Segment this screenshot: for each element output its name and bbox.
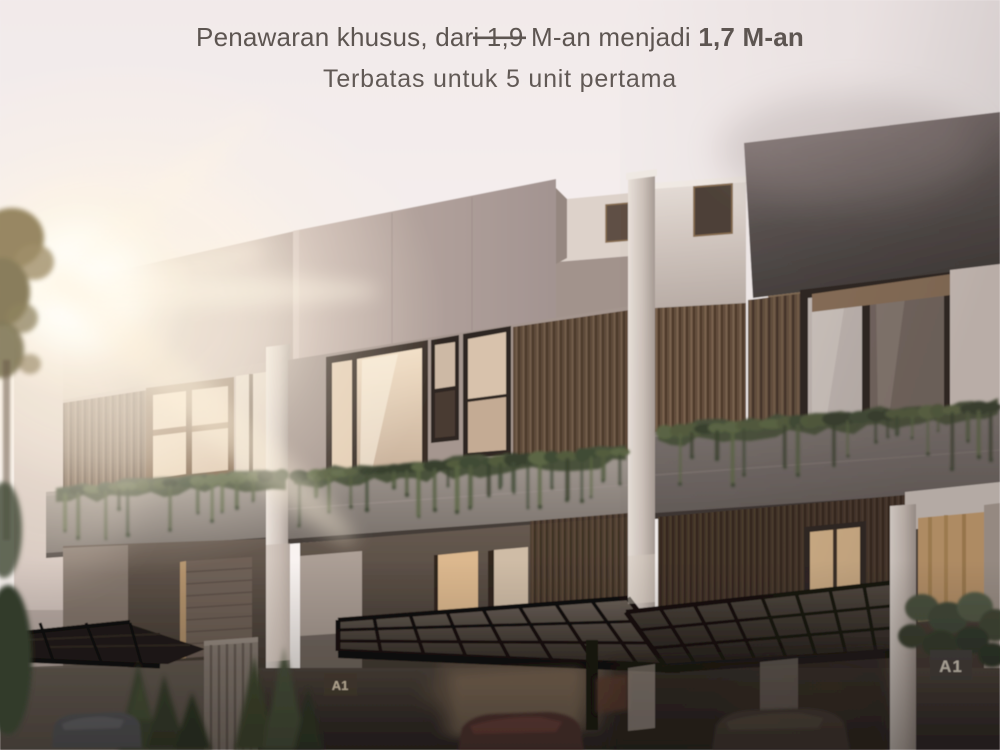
- svg-text:Terbatas untuk 5 unit pertama: Terbatas untuk 5 unit pertama: [323, 65, 677, 93]
